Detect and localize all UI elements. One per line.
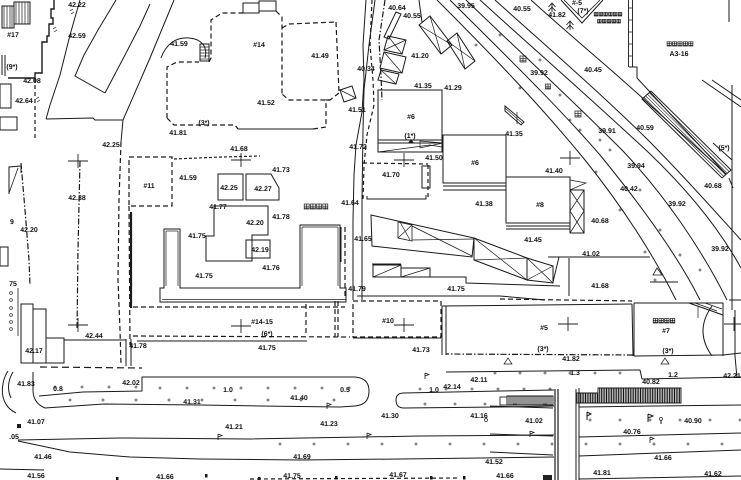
svg-text:(3*): (3*)	[537, 345, 548, 353]
svg-text:41.75: 41.75	[195, 273, 213, 280]
svg-text:#7: #7	[662, 328, 670, 335]
svg-text:41.35: 41.35	[505, 131, 523, 138]
svg-text:#-5: #-5	[572, 0, 582, 7]
svg-text:41.65: 41.65	[354, 236, 372, 243]
svg-text:41.66: 41.66	[654, 455, 672, 462]
svg-text:41.64: 41.64	[341, 200, 359, 207]
svg-text:(9*): (9*)	[6, 63, 17, 71]
svg-text:1.0: 1.0	[223, 387, 233, 394]
svg-text:42.59: 42.59	[68, 33, 86, 40]
svg-text:42.64: 42.64	[15, 98, 33, 105]
svg-text:41.75: 41.75	[188, 233, 206, 240]
svg-text:40.76: 40.76	[623, 429, 641, 436]
svg-text:41.66: 41.66	[156, 474, 174, 480]
svg-text:#6: #6	[407, 114, 415, 121]
svg-text:41.30: 41.30	[381, 413, 399, 420]
svg-text:42.08: 42.08	[23, 78, 41, 85]
svg-text:(3*): (3*)	[198, 119, 209, 127]
svg-text:41.16: 41.16	[470, 413, 488, 420]
svg-text:40.68: 40.68	[704, 183, 722, 190]
svg-text:42.20: 42.20	[20, 227, 38, 234]
svg-text:41.02: 41.02	[582, 251, 600, 258]
svg-text:40.55: 40.55	[403, 13, 421, 20]
svg-text:75: 75	[9, 281, 17, 288]
svg-text:41.59: 41.59	[179, 175, 197, 182]
svg-text:42.14: 42.14	[443, 384, 461, 391]
svg-text:(1*): (1*)	[404, 132, 415, 140]
svg-text:41.81: 41.81	[169, 130, 187, 137]
svg-text:#17: #17	[7, 32, 19, 39]
svg-text:(7*): (7*)	[577, 7, 588, 15]
svg-text:40.90: 40.90	[684, 418, 702, 425]
svg-text:41.78: 41.78	[272, 214, 290, 221]
svg-text:41.31: 41.31	[183, 399, 201, 406]
svg-text:42.19: 42.19	[251, 247, 269, 254]
svg-text:41.78: 41.78	[129, 343, 147, 350]
svg-text:A3-16: A3-16	[669, 51, 688, 58]
svg-text:41.59: 41.59	[170, 41, 188, 48]
svg-text:42.20: 42.20	[246, 220, 264, 227]
svg-text:41.52: 41.52	[257, 100, 275, 107]
svg-text:#14: #14	[253, 42, 265, 49]
svg-text:41.02: 41.02	[525, 418, 543, 425]
svg-text:41.75: 41.75	[283, 473, 301, 480]
svg-text:41.70: 41.70	[382, 172, 400, 179]
svg-text:40.59: 40.59	[636, 125, 654, 132]
svg-text:41.69: 41.69	[293, 454, 311, 461]
svg-text:41.51: 41.51	[348, 107, 366, 114]
svg-text:39.91: 39.91	[598, 128, 616, 135]
svg-text:.05: .05	[9, 434, 19, 441]
svg-text:(6*): (6*)	[261, 330, 272, 338]
svg-text:40.45: 40.45	[584, 67, 602, 74]
svg-text:42.22: 42.22	[68, 2, 86, 9]
svg-text:41.40: 41.40	[290, 395, 308, 402]
svg-text:41.75: 41.75	[258, 345, 276, 352]
svg-text:41.38: 41.38	[475, 201, 493, 208]
svg-text:41.07: 41.07	[27, 419, 45, 426]
svg-text:42.25: 42.25	[102, 142, 120, 149]
svg-text:41.68: 41.68	[591, 283, 609, 290]
svg-text:42.38: 42.38	[68, 195, 86, 202]
svg-text:42.44: 42.44	[85, 333, 103, 340]
svg-text:41.67: 41.67	[389, 472, 407, 479]
svg-text:41.79: 41.79	[348, 286, 366, 293]
svg-text:42.25: 42.25	[220, 185, 238, 192]
svg-text:42.02: 42.02	[122, 380, 140, 387]
svg-text:0.5: 0.5	[340, 387, 350, 394]
svg-text:#11: #11	[143, 183, 154, 190]
svg-text:41.20: 41.20	[411, 53, 429, 60]
svg-text:39.94: 39.94	[627, 163, 645, 170]
svg-text:41.81: 41.81	[593, 470, 611, 477]
svg-text:1.0: 1.0	[429, 387, 439, 394]
svg-text:#8: #8	[536, 202, 544, 209]
svg-text:1.3: 1.3	[570, 370, 580, 377]
svg-text:39.95: 39.95	[457, 3, 475, 10]
svg-text:41.29: 41.29	[444, 85, 462, 92]
svg-text:40.82: 40.82	[642, 379, 660, 386]
svg-text:40.42: 40.42	[620, 186, 638, 193]
svg-text:41.83: 41.83	[17, 381, 35, 388]
svg-text:40.34: 40.34	[357, 66, 375, 73]
svg-text:9: 9	[10, 219, 14, 226]
svg-text:(5*): (5*)	[718, 144, 729, 152]
svg-text:41.72: 41.72	[349, 144, 367, 151]
svg-text:#6: #6	[471, 160, 479, 167]
svg-text:41.45: 41.45	[524, 237, 542, 244]
svg-text:#5: #5	[540, 325, 548, 332]
svg-text:40.68: 40.68	[591, 218, 609, 225]
svg-text:41.73: 41.73	[272, 167, 290, 174]
svg-text:39.92: 39.92	[530, 70, 548, 77]
svg-text:41.75: 41.75	[447, 286, 465, 293]
svg-text:41.21: 41.21	[225, 424, 243, 431]
svg-text:41.82: 41.82	[548, 12, 566, 19]
svg-text:41.50: 41.50	[425, 155, 443, 162]
svg-text:41.68: 41.68	[230, 146, 248, 153]
svg-text:1.2: 1.2	[668, 372, 678, 379]
svg-text:41.62: 41.62	[704, 471, 722, 478]
svg-text:41.82: 41.82	[562, 356, 580, 363]
svg-text:41.76: 41.76	[262, 265, 280, 272]
svg-text:41.49: 41.49	[311, 53, 329, 60]
svg-text:42.27: 42.27	[254, 186, 272, 193]
svg-text:42.11: 42.11	[470, 377, 487, 384]
svg-text:41.73: 41.73	[412, 347, 430, 354]
svg-text:0.8: 0.8	[53, 386, 63, 393]
svg-text:42.17: 42.17	[25, 348, 43, 355]
svg-text:41.56: 41.56	[27, 473, 45, 480]
svg-text:42.21: 42.21	[723, 373, 741, 380]
svg-text:#10: #10	[382, 318, 394, 325]
svg-text:41.77: 41.77	[209, 204, 227, 211]
svg-text:40.55: 40.55	[513, 6, 531, 13]
svg-text:40.64: 40.64	[388, 5, 406, 12]
svg-text:(3*): (3*)	[662, 347, 673, 355]
svg-text:41.66: 41.66	[496, 473, 514, 480]
svg-text:41.35: 41.35	[414, 83, 432, 90]
svg-text:#14-15: #14-15	[251, 319, 273, 326]
svg-text:41.52: 41.52	[485, 459, 503, 466]
svg-text:39.92: 39.92	[668, 201, 686, 208]
svg-text:41.46: 41.46	[34, 454, 52, 461]
svg-text:39.92: 39.92	[711, 246, 729, 253]
svg-text:41.40: 41.40	[545, 168, 563, 175]
svg-text:41.23: 41.23	[320, 421, 338, 428]
